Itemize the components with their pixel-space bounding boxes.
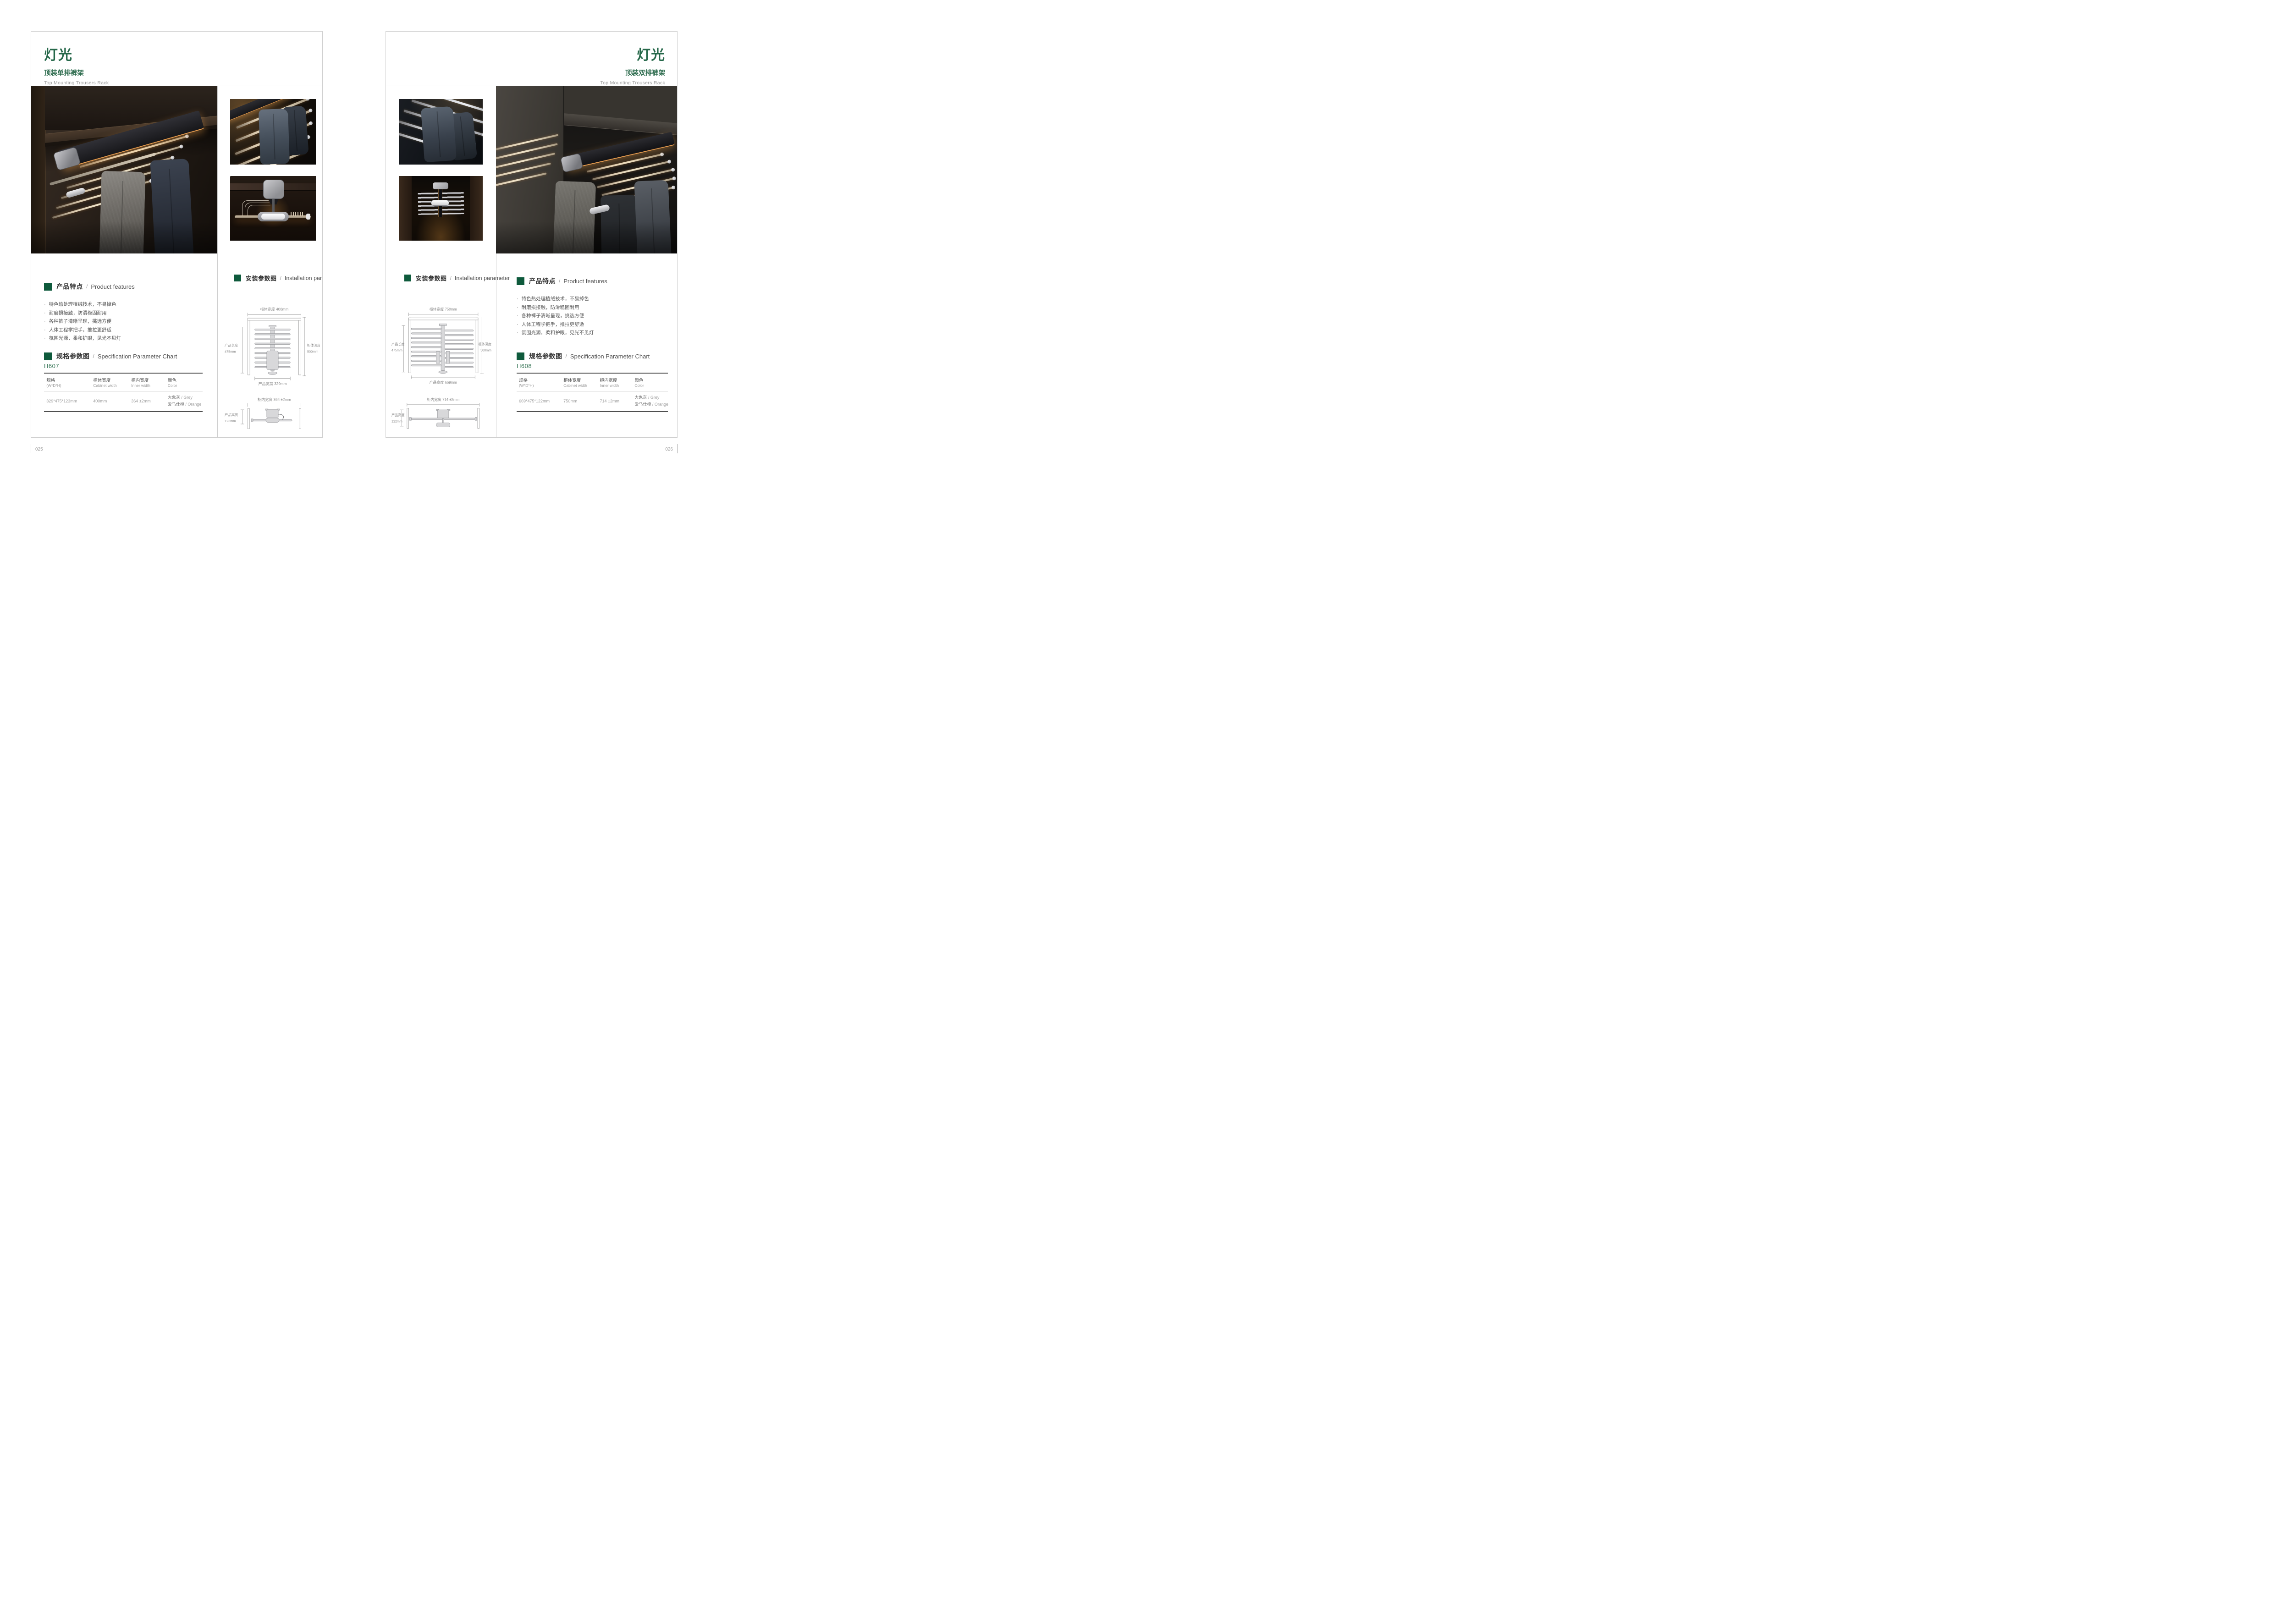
feature-text: 氛围光源，柔和护眼，见光不见灯 — [522, 330, 594, 336]
section-marker-icon — [517, 352, 524, 360]
pull-handle — [431, 200, 449, 206]
feature-text: 耐磨损接触，防滑稳固耐用 — [49, 310, 107, 316]
title-separator: / — [450, 275, 452, 281]
column-header-en: (W*D*H) — [46, 383, 61, 388]
spec-heading: 规格参数图 / Specification Parameter Chart — [44, 352, 203, 361]
column-header-en: Cabinet width — [563, 383, 587, 388]
dim-product-length-label: 产品长度 — [391, 342, 405, 346]
feature-text: 人体工程学把手，推拉更舒适 — [49, 327, 112, 333]
features-heading: 产品特点 / Product features — [517, 276, 671, 286]
column-header-en: (W*D*H) — [519, 383, 534, 388]
table-rule — [517, 411, 668, 412]
cell-color: 大象灰 / Grey 爱马仕橙 / Orange — [168, 394, 202, 408]
feature-text: 特色热处理植绒技术，不易掉色 — [49, 302, 116, 307]
column-header-zh: 柜内宽度 — [131, 377, 149, 383]
bullet-icon: · — [44, 310, 46, 316]
product-features-section: 产品特点 / Product features ·特色热处理植绒技术，不易掉色 … — [44, 282, 212, 343]
install-heading: 安装参数图 / Installation parameter — [234, 274, 323, 282]
page-subtitle: 顶装单排裤架 — [44, 68, 322, 77]
spec-title-en: Specification Parameter Chart — [570, 353, 650, 360]
install-title-en: Installation parameter — [455, 275, 510, 281]
page-subtitle-en: Top Mounting Trousers Rack — [44, 80, 322, 86]
features-title-en: Product features — [91, 283, 134, 290]
feature-text: 氛围光源，柔和护眼，见光不见灯 — [49, 336, 121, 341]
cell-size: 329*475*123mm — [46, 399, 77, 403]
features-title-zh: 产品特点 — [56, 282, 83, 291]
install-front-view-diagram: 柜内宽度 714 ±2mm 产品高度 122mm — [391, 396, 491, 433]
mount-device — [433, 182, 448, 189]
features-title-zh: 产品特点 — [529, 276, 556, 286]
catalog-spread: 灯光 顶装单排裤架 Top Mounting Trousers Rack — [0, 0, 708, 462]
section-marker-icon — [517, 277, 524, 285]
bullet-icon: · — [44, 302, 46, 307]
dim-product-length-value: 475mm — [391, 349, 402, 352]
dim-cabinet-width: 柜体宽度 400mm — [260, 307, 288, 312]
column-header-en: Inner width — [131, 383, 150, 388]
trousers-blue-grey — [259, 109, 290, 165]
table-rule — [44, 411, 203, 412]
cell-inner-width: 364 ±2mm — [131, 399, 150, 403]
install-title-zh: 安装参数图 — [416, 274, 447, 282]
column-header-en: Inner width — [600, 383, 619, 388]
photo-vignette — [31, 221, 217, 253]
color-option-en: / Grey — [648, 395, 660, 400]
page-number-text: 025 — [35, 447, 43, 452]
cell-cabinet-width: 750mm — [563, 399, 577, 403]
install-title-zh: 安装参数图 — [246, 274, 277, 282]
table-rule — [517, 391, 668, 391]
title-separator: / — [280, 275, 281, 281]
product-features-section: 产品特点 / Product features ·特色热处理植绒技术，不易掉色 … — [517, 276, 671, 337]
dim-product-height-value: 123mm — [225, 419, 236, 423]
features-list: ·特色热处理植绒技术，不易掉色 ·耐磨损接触，防滑稳固耐用 ·各种裤子清晰呈现，… — [44, 300, 212, 343]
dim-product-height-label: 产品高度 — [225, 413, 238, 417]
install-heading: 安装参数图 / Installation parameter — [404, 274, 510, 282]
bullet-icon: · — [517, 330, 518, 336]
column-header-zh: 柜体宽度 — [563, 377, 581, 383]
page-number-text: 026 — [665, 447, 673, 452]
column-divider — [217, 86, 218, 437]
trousers-blue-grey — [421, 106, 457, 163]
bullet-icon: · — [44, 319, 46, 324]
column-header-zh: 规格 — [519, 377, 528, 383]
spec-table: 规格 (W*D*H) 669*475*122mm 柜体宽度 Cabinet wi… — [517, 373, 668, 412]
dim-product-length-value: 475mm — [225, 350, 236, 354]
dim-cabinet-depth-value: 500mm — [480, 349, 491, 352]
feature-item: ·耐磨损接触，防滑稳固耐用 — [44, 309, 212, 318]
dim-product-width: 产品宽度 329mm — [259, 381, 287, 386]
feature-text: 人体工程学把手，推拉更舒适 — [522, 322, 584, 327]
main-product-photo — [496, 86, 678, 253]
spec-table: 规格 (W*D*H) 329*475*123mm 柜体宽度 Cabinet wi… — [44, 373, 203, 412]
feature-item: ·氛围光源，柔和护眼，见光不见灯 — [44, 334, 212, 343]
page-title: 灯光 — [386, 44, 665, 64]
cabinet-wall — [470, 176, 483, 241]
cell-color: 大象灰 / Grey 爱马仕橙 / Orange — [634, 394, 668, 408]
bullet-icon: · — [517, 296, 518, 302]
color-option-en: / Orange — [185, 402, 201, 407]
feature-item: ·特色热处理植绒技术，不易掉色 — [44, 300, 212, 309]
spec-heading: 规格参数图 / Specification Parameter Chart — [517, 352, 668, 361]
thumbnail-photo-top — [399, 99, 483, 165]
spec-section: 规格参数图 / Specification Parameter Chart H6… — [44, 352, 203, 361]
catalog-page-right: 灯光 顶装双排裤架 Top Mounting Trousers Rack — [386, 31, 678, 438]
feature-item: ·人体工程学把手，推拉更舒适 — [44, 326, 212, 335]
page-header: 灯光 顶装单排裤架 Top Mounting Trousers Rack — [31, 32, 322, 86]
section-marker-icon — [44, 283, 52, 291]
model-number: H608 — [517, 363, 532, 369]
feature-item: ·氛围光源，柔和护眼，见光不见灯 — [517, 329, 671, 337]
color-option-zh: 爱马仕橙 — [634, 402, 651, 407]
feature-item: ·各种裤子清晰呈现，挑选方便 — [517, 312, 671, 320]
thumbnail-photo-top — [230, 99, 316, 165]
thumbnail-photo-bottom — [399, 176, 483, 241]
hanger-wire — [230, 176, 231, 176]
dim-product-width: 产品宽度 669mm — [430, 380, 457, 385]
bullet-icon: · — [517, 305, 518, 310]
bullet-icon: · — [44, 327, 46, 333]
rod-teeth — [291, 212, 304, 216]
dim-product-height-value: 122mm — [391, 419, 402, 423]
feature-item: ·特色热处理植绒技术，不易掉色 — [517, 295, 671, 303]
feature-text: 各种裤子清晰呈现，挑选方便 — [522, 313, 584, 319]
title-separator: / — [86, 283, 88, 290]
bullet-icon: · — [517, 313, 518, 319]
spec-title-zh: 规格参数图 — [56, 352, 90, 361]
section-marker-icon — [44, 352, 52, 360]
color-option-zh: 爱马仕橙 — [168, 402, 184, 407]
dim-inner-width: 柜内宽度 364 ±2mm — [258, 397, 291, 402]
features-title-en: Product features — [563, 278, 607, 285]
feature-item: ·耐磨损接触，防滑稳固耐用 — [517, 303, 671, 312]
table-rule — [44, 391, 203, 391]
color-option-zh: 大象灰 — [634, 395, 647, 400]
color-option-en: / Grey — [181, 395, 193, 400]
feature-text: 耐磨损接触，防滑稳固耐用 — [522, 305, 579, 310]
spec-title-zh: 规格参数图 — [529, 352, 562, 361]
column-header-zh: 规格 — [46, 377, 55, 383]
table-rule — [44, 373, 203, 374]
title-separator: / — [566, 353, 567, 359]
page-subtitle: 顶装双排裤架 — [386, 68, 665, 77]
feature-text: 特色热处理植绒技术，不易掉色 — [522, 296, 589, 302]
pull-handle — [258, 212, 289, 221]
section-marker-icon — [234, 275, 241, 281]
column-header-zh: 颜色 — [168, 377, 176, 383]
features-heading: 产品特点 / Product features — [44, 282, 212, 291]
page-number-tick — [677, 444, 678, 453]
feature-text: 各种裤子清晰呈现，挑选方便 — [49, 319, 112, 324]
section-marker-icon — [404, 275, 411, 281]
table-rule — [517, 373, 668, 374]
catalog-page-left: 灯光 顶装单排裤架 Top Mounting Trousers Rack — [31, 31, 323, 438]
column-header-zh: 柜内宽度 — [600, 377, 617, 383]
install-top-view-diagram: 柜体宽度 750mm 产品长度 475mm 柜体深度 500mm 产品宽度 66… — [391, 306, 491, 388]
dim-cabinet-depth-value: 500mm — [307, 350, 319, 354]
cabinet-wall — [399, 176, 412, 241]
color-option-en: / Orange — [652, 402, 668, 407]
cell-inner-width: 714 ±2mm — [600, 399, 619, 403]
dim-cabinet-depth-label: 柜体深度 — [478, 342, 491, 346]
mount-device — [263, 180, 284, 199]
bullet-icon: · — [44, 336, 46, 341]
title-separator: / — [93, 353, 94, 359]
dim-inner-width: 柜内宽度 714 ±2mm — [427, 397, 459, 402]
install-front-view-diagram: 柜内宽度 364 ±2mm 产品高度 123mm — [225, 396, 320, 434]
page-subtitle-en: Top Mounting Trousers Rack — [386, 80, 665, 86]
dim-product-height-label: 产品高度 — [391, 413, 405, 417]
thumbnail-photo-bottom — [230, 176, 316, 241]
cell-cabinet-width: 400mm — [93, 399, 107, 403]
column-header-zh: 颜色 — [634, 377, 643, 383]
feature-item: ·人体工程学把手，推拉更舒适 — [517, 320, 671, 329]
rod-end-knob — [306, 214, 310, 220]
photo-vignette — [496, 221, 678, 253]
page-header: 灯光 顶装双排裤架 Top Mounting Trousers Rack — [386, 32, 677, 86]
dim-cabinet-width: 柜体宽度 750mm — [430, 307, 457, 311]
spec-section: 规格参数图 / Specification Parameter Chart H6… — [517, 352, 668, 361]
column-header-zh: 柜体宽度 — [93, 377, 110, 383]
install-title-en: Installation parameter — [285, 275, 323, 281]
page-number-tick — [31, 444, 31, 453]
column-header-en: Color — [634, 383, 644, 388]
install-top-view-diagram: 柜体宽度 400mm 产品长度 475mm 柜体深度 500mm 产品宽度 32… — [225, 306, 320, 390]
column-header-en: Cabinet width — [93, 383, 117, 388]
features-list: ·特色热处理植绒技术，不易掉色 ·耐磨损接触，防滑稳固耐用 ·各种裤子清晰呈现，… — [517, 295, 671, 337]
color-option-zh: 大象灰 — [168, 395, 180, 400]
bullet-icon: · — [517, 322, 518, 327]
feature-item: ·各种裤子清晰呈现，挑选方便 — [44, 317, 212, 326]
dim-cabinet-depth-label: 柜体深度 — [307, 343, 320, 347]
spec-title-en: Specification Parameter Chart — [98, 353, 177, 360]
dim-product-length-label: 产品长度 — [225, 343, 238, 347]
main-product-photo — [31, 86, 217, 253]
title-separator: / — [559, 278, 560, 284]
page-title: 灯光 — [44, 44, 322, 64]
cell-size: 669*475*122mm — [519, 399, 550, 403]
column-header-en: Color — [168, 383, 177, 388]
model-number: H607 — [44, 363, 59, 369]
